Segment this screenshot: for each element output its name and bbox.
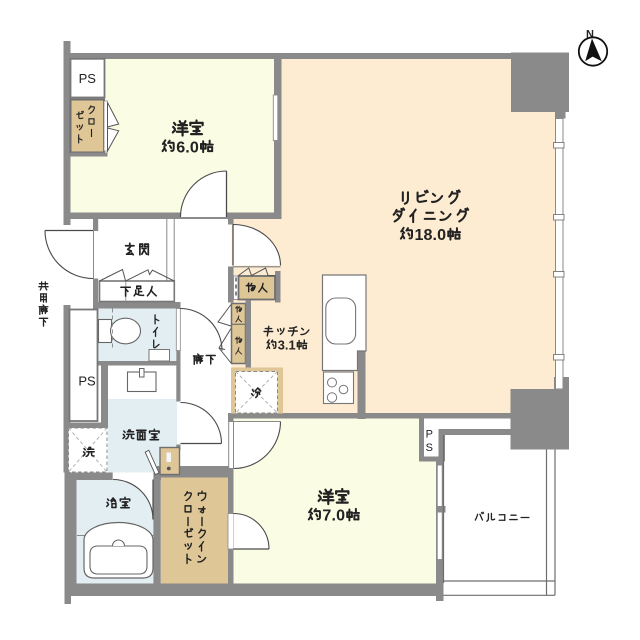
svg-text:0: 0 [190,138,199,156]
svg-text:6: 6 [176,138,185,156]
svg-text:0: 0 [437,226,446,244]
svg-text:PS: PS [78,374,96,389]
svg-text:0: 0 [336,507,345,525]
svg-text:3: 3 [278,337,285,352]
svg-text:PS: PS [79,71,97,86]
svg-text:1: 1 [415,226,424,244]
svg-text:S: S [426,442,433,454]
svg-text:8: 8 [424,226,433,244]
svg-text:1: 1 [289,337,296,352]
svg-text:P: P [426,429,433,441]
svg-text:7: 7 [322,507,331,525]
